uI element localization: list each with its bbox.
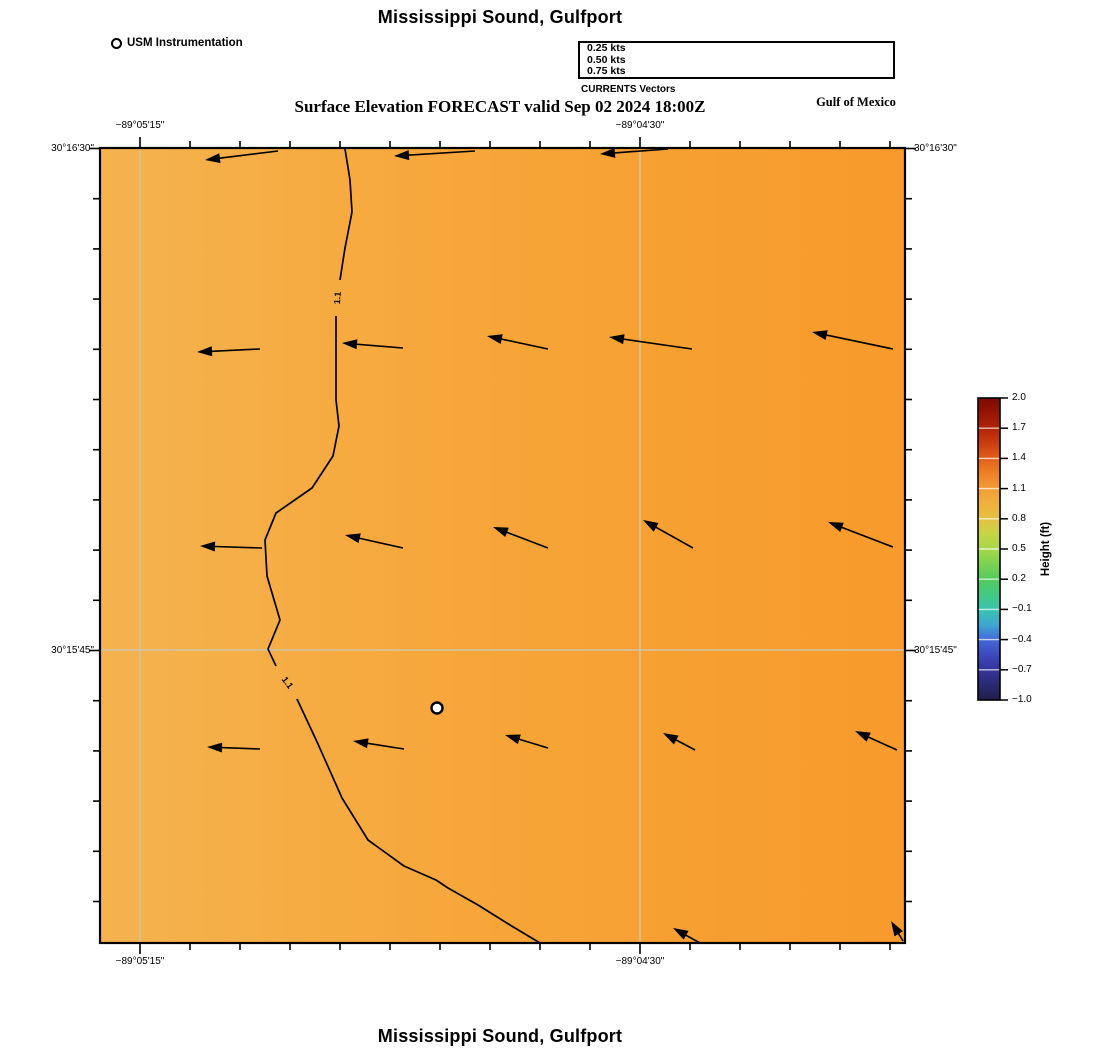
colorbar-tick-label: −1.0 [1012,694,1052,705]
current-vector-arrow [207,546,262,548]
current-vector-arrow [512,737,548,748]
station-legend-label: USM Instrumentation [127,37,243,49]
map-fill [100,148,905,943]
axis-labels-layer: −89°05'15"−89°05'15"−89°04'30"−89°04'30"… [0,0,1100,1050]
current-vector-arrow [680,932,700,943]
map-plot: 1.11.1 [0,0,1100,1050]
map-border [100,148,905,943]
colorbar-title: Height (ft) [1040,509,1054,589]
colorbar-border [978,398,1000,700]
legend-speed-label: 0.25 kts [587,43,626,55]
current-vector-arrow-head [487,334,503,344]
current-speed-legend-box: 0.25 kts 0.50 kts 0.75 kts [578,41,895,79]
current-vector-arrow-head [197,346,212,356]
current-vector-arrow-head [205,153,220,163]
x-axis-label-bottom: −89°05'15" [95,956,185,967]
current-vector-arrow [494,338,548,349]
current-vector-arrow-head [855,731,871,742]
current-vector-arrow-head [643,520,659,532]
current-vector-arrow [401,151,475,156]
current-vector-arrow-head [609,334,625,344]
current-vector-arrow [352,537,403,548]
contour-value-label: 1.1 [280,675,295,691]
elevation-contour-line [265,316,339,666]
current-vector-arrow [349,344,403,348]
current-vector-arrow [607,149,668,153]
current-vector-arrow-head [828,522,844,532]
current-vector-arrow [650,524,693,548]
current-vector-arrow-head [200,541,215,551]
current-vector-arrow-head [394,150,409,160]
y-axis-label-right: 30°16'30" [914,143,990,154]
current-vector-arrow [204,349,260,352]
current-vector-arrow-head [673,928,689,940]
colorbar-tick-label: −0.1 [1012,603,1052,614]
x-axis-label-top: −89°05'15" [95,120,185,131]
x-axis-label-top: −89°04'30" [595,120,685,131]
current-vector-arrow [212,151,278,159]
legend-caption: CURRENTS Vectors [581,84,675,95]
current-vector-arrow-head [812,330,828,340]
station-marker-icon [111,38,122,49]
colorbar-tick-label: 1.7 [1012,422,1052,433]
region-label: Gulf of Mexico [801,95,911,110]
current-vector-arrow [360,742,404,749]
y-axis-label-right: 30°15'45" [914,645,990,656]
current-vector-arrow [835,525,893,547]
station-marker [432,703,443,714]
colorbar-tick-label: 1.4 [1012,452,1052,463]
current-vector-arrow [862,734,897,750]
elevation-contour-line [340,149,352,280]
current-vector-arrow-head [353,738,369,748]
current-vector-arrow [616,338,692,349]
current-vector-arrow [819,334,893,349]
colorbar-tick-label: 1.1 [1012,483,1052,494]
figure-title-bottom: Mississippi Sound, Gulfport [150,1026,850,1047]
colorbar-gradient [978,398,1000,700]
current-vector-arrow-head [891,921,903,936]
current-vector-arrow [895,927,903,941]
current-vector-arrow [670,737,695,750]
figure-title-top: Mississippi Sound, Gulfport [150,7,850,28]
legend-speed-label: 0.75 kts [587,66,626,78]
current-vector-arrow-head [207,743,222,753]
current-vector-arrow-head [342,339,357,349]
colorbar-tick-label: 2.0 [1012,392,1052,403]
colorbar-tick-label: −0.7 [1012,664,1052,675]
figure: 1.11.1 Mississippi Sound, Gulfport USM I… [0,0,1100,1050]
colorbar-labels-layer: 2.01.71.41.10.80.50.2−0.1−0.4−0.7−1.0 [0,0,1100,1050]
current-vector-arrow-head [493,527,509,537]
current-vector-arrow [500,530,548,548]
current-vector-arrow-head [600,148,615,158]
forecast-subtitle: Surface Elevation FORECAST valid Sep 02 … [120,97,880,117]
current-vector-arrow-head [663,733,679,744]
x-axis-label-bottom: −89°04'30" [595,956,685,967]
y-axis-label-left: 30°16'30" [18,143,94,154]
elevation-contour-line [297,699,540,943]
current-vector-arrow-head [505,735,521,745]
y-axis-label-left: 30°15'45" [18,645,94,656]
current-vector-arrow-head [345,533,361,543]
station-legend: USM Instrumentation [111,37,243,49]
contour-value-label: 1.1 [332,291,343,304]
colorbar-tick-label: −0.4 [1012,634,1052,645]
current-vector-arrow [214,747,260,749]
